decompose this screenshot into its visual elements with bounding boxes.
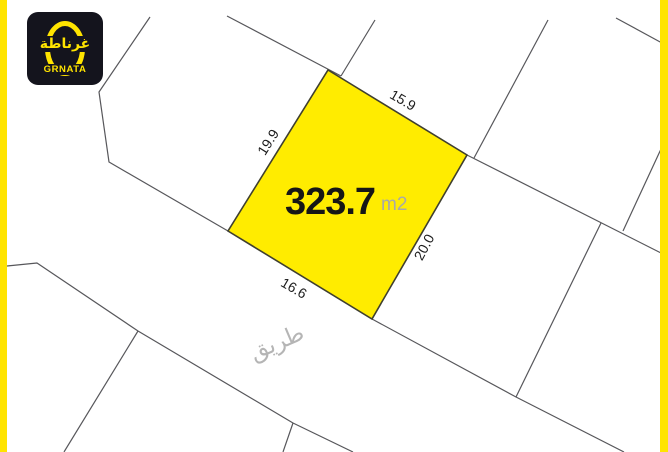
logo-arabic-text: غرناطة: [27, 36, 103, 52]
divider-top: [341, 20, 375, 76]
boundary-parallel-right: [467, 155, 661, 253]
left-accent-strip: [0, 0, 7, 452]
divider-lower-right: [516, 223, 601, 397]
logo-latin-text: GRNATA: [27, 64, 103, 75]
boundary-road-upper-right: [372, 319, 624, 452]
divider-upper-right: [474, 20, 548, 158]
divider-lower-left: [64, 331, 138, 452]
road-label: طريق: [246, 320, 308, 366]
plot-area-value: 323.7: [285, 181, 375, 223]
plot-area-unit: m2: [381, 194, 407, 215]
boundary-far-upper-right: [616, 18, 662, 43]
boundary-upper-left: [99, 17, 228, 231]
plot-map: 15.9 19.9 20.0 16.6 323.7 m2 طريق غرناطة…: [0, 0, 668, 452]
logo-latin-word: GRNATA: [42, 64, 89, 75]
logo-arabic-word: غرناطة: [39, 36, 91, 52]
grnata-logo: غرناطة GRNATA: [27, 12, 103, 85]
boundary-top-parcel: [227, 16, 341, 76]
divider-bottom-center: [283, 423, 293, 452]
divider-right-edge: [623, 149, 661, 231]
right-accent-strip: [660, 0, 668, 452]
